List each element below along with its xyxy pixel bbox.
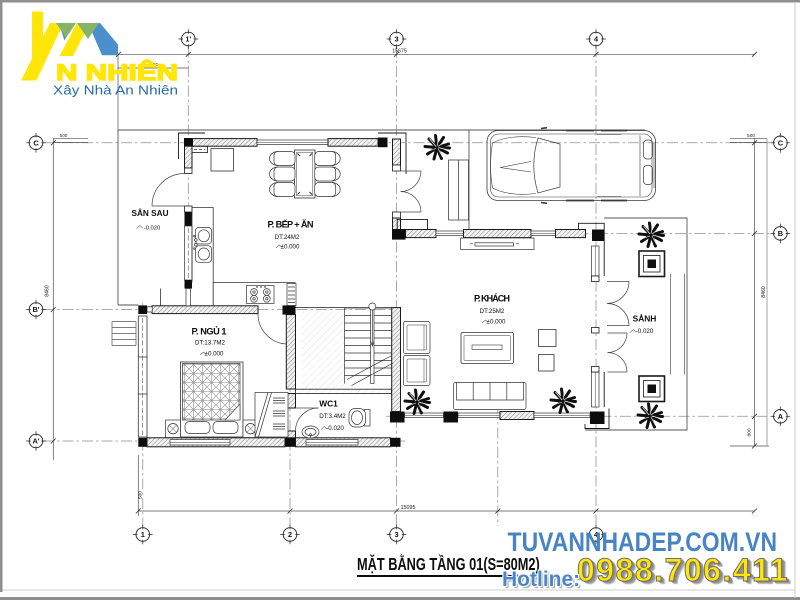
svg-text:Xây Nhà An Nhiên: Xây Nhà An Nhiên [53,83,178,98]
svg-text:1: 1 [141,530,145,539]
svg-text:B: B [778,229,783,238]
svg-text:15675: 15675 [392,49,407,55]
svg-text:DT:25M2: DT:25M2 [480,308,505,315]
svg-text:2: 2 [288,530,292,539]
svg-text:P. BẾP + ĂN: P. BẾP + ĂN [268,220,314,230]
svg-text:500: 500 [60,133,68,138]
svg-text:±0.000: ±0.000 [281,244,300,251]
svg-text:A: A [778,412,784,421]
svg-text:-0.020: -0.020 [144,226,160,232]
svg-text:800: 800 [747,428,753,436]
svg-text:P. KHÁCH: P. KHÁCH [474,293,510,304]
svg-text:DT:24M2: DT:24M2 [275,234,300,241]
svg-text:8460: 8460 [761,286,767,298]
svg-text:SẢNH: SẢNH [633,313,657,324]
svg-text:-0.020: -0.020 [326,425,344,432]
svg-text:DT:3.4M2: DT:3.4M2 [319,413,346,420]
svg-text:SÂN SAU: SÂN SAU [132,207,169,218]
svg-text:15095: 15095 [401,505,416,511]
svg-text:-0.020: -0.020 [636,328,654,335]
svg-text:WC1: WC1 [319,399,338,409]
svg-text:3: 3 [394,35,398,44]
svg-text:N NHIÊN: N NHIÊN [56,60,178,85]
svg-text:8460: 8460 [45,285,51,297]
svg-text:500: 500 [747,133,755,138]
svg-text:±0.000: ±0.000 [487,319,506,326]
svg-text:C: C [778,139,784,148]
svg-text:P. NGỦ 1: P. NGỦ 1 [192,326,227,337]
svg-text:500: 500 [138,491,144,499]
svg-text:±0.000: ±0.000 [205,351,224,358]
svg-text:A': A' [32,437,39,446]
svg-text:DT:13.7M2: DT:13.7M2 [195,340,225,347]
svg-text:1': 1' [185,35,191,44]
svg-text:3: 3 [394,530,398,539]
svg-text:C: C [33,139,39,148]
svg-text:B': B' [32,305,39,314]
